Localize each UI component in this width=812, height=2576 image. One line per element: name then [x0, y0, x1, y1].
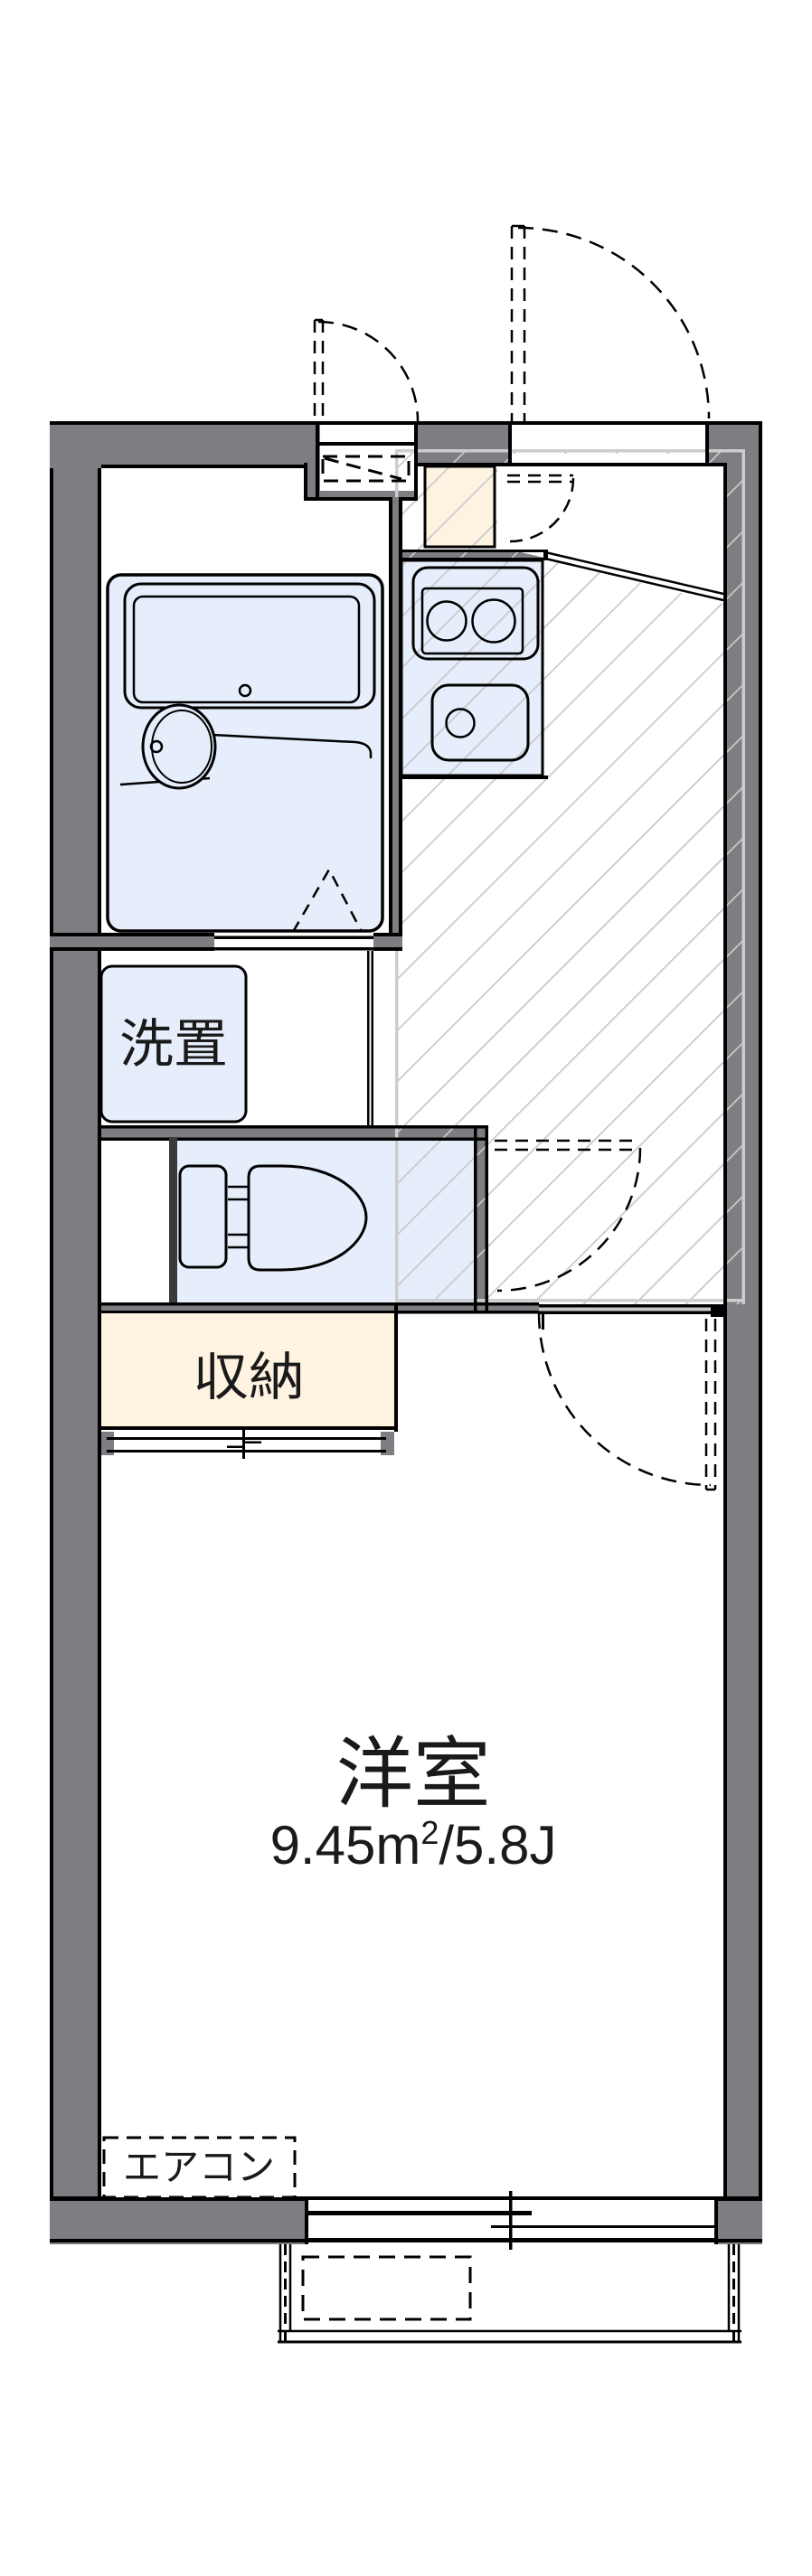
svg-text:洗置: 洗置 [119, 1015, 228, 1074]
svg-text:収納: 収納 [193, 1349, 305, 1406]
svg-text:9.45m2/5.8J: 9.45m2/5.8J [270, 1814, 557, 1876]
svg-text:エアコン: エアコン [123, 2146, 275, 2188]
svg-text:洋室: 洋室 [336, 1731, 491, 1818]
